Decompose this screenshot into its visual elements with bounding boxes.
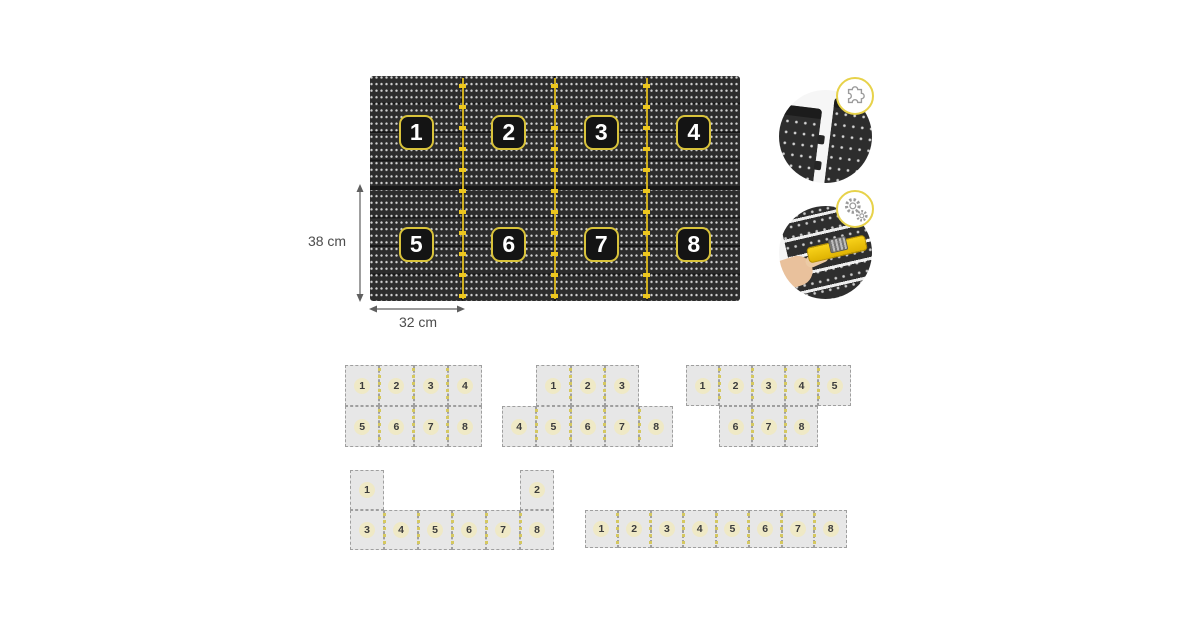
tile-connector-dashes (569, 409, 572, 444)
layout-tile: 8 (785, 406, 818, 447)
layout-tile: 1 (686, 365, 719, 406)
panel-number-badge: 5 (399, 227, 434, 262)
tile-connector-dashes (446, 409, 449, 444)
tile-connector-dashes (718, 368, 721, 403)
tile-number: 2 (626, 521, 642, 537)
layout-tile: 1 (345, 365, 379, 406)
layout-tile: 3 (414, 365, 448, 406)
tile-number: 6 (757, 521, 773, 537)
height-dimension-label: 38 cm (302, 233, 352, 249)
panel-number-badge: 1 (399, 115, 434, 150)
product-diagram-canvas: 12345678 38 cm 32 cm (0, 0, 1200, 630)
layout-tile: 1 (585, 510, 618, 548)
tile-number: 8 (648, 419, 664, 435)
layout-tile: 4 (384, 510, 418, 550)
tile-number: 6 (461, 522, 477, 538)
tile-number: 5 (354, 419, 370, 435)
tile-number: 6 (580, 419, 596, 435)
tile-connector-dashes (412, 368, 415, 403)
layout-tile: 4 (448, 365, 482, 406)
tile-number: 4 (393, 522, 409, 538)
layout-tile: 5 (345, 406, 379, 447)
tile-number: 4 (794, 378, 810, 394)
layout-tile: 3 (752, 365, 785, 406)
gears-icon (842, 196, 869, 223)
panel-connector-strip (643, 78, 650, 299)
layout-tile: 6 (571, 406, 605, 447)
tile-number: 7 (495, 522, 511, 538)
tile-connector-dashes (378, 368, 381, 403)
tile-number: 5 (545, 419, 561, 435)
layout-tile: 3 (350, 510, 384, 550)
tile-number: 8 (794, 419, 810, 435)
tile-number: 7 (761, 419, 777, 435)
layout-tile: 2 (379, 365, 413, 406)
panel-number-badge: 6 (491, 227, 526, 262)
tile-connector-dashes (519, 513, 522, 547)
tile-number: 1 (545, 378, 561, 394)
layout-tile: 2 (520, 470, 554, 510)
layout-tile: 5 (818, 365, 851, 406)
layout-tile: 6 (379, 406, 413, 447)
layout-tile: 7 (782, 510, 815, 548)
tile-number: 3 (659, 521, 675, 537)
layout-tile: 7 (605, 406, 639, 447)
layout-tile: 8 (520, 510, 554, 550)
panel-connector-strip (551, 78, 558, 299)
layout-tile: 7 (752, 406, 785, 447)
connector-tab (817, 135, 825, 145)
layout-tile: 4 (502, 406, 536, 447)
layout-tile: 4 (683, 510, 716, 548)
tile-connector-dashes (383, 513, 386, 547)
tile-connector-dashes (535, 409, 538, 444)
tile-number: 6 (388, 419, 404, 435)
tile-number: 3 (761, 378, 777, 394)
tile-number: 2 (580, 378, 596, 394)
tile-number: 8 (529, 522, 545, 538)
tile-number: 8 (457, 419, 473, 435)
layout-tile: 7 (414, 406, 448, 447)
layout-tile: 5 (418, 510, 452, 550)
tile-connector-dashes (784, 368, 787, 403)
tile-connector-dashes (780, 513, 783, 545)
layout-tile: 5 (536, 406, 570, 447)
tile-connector-dashes (569, 368, 572, 403)
main-pegboard: 12345678 (370, 76, 740, 301)
connector-tab (814, 161, 822, 171)
tile-number: 1 (593, 521, 609, 537)
tile-number: 4 (692, 521, 708, 537)
panel-connector-strip (459, 78, 466, 299)
tile-number: 4 (511, 419, 527, 435)
tile-number: 4 (457, 378, 473, 394)
layout-tile: 6 (452, 510, 486, 550)
layout-tile: 6 (719, 406, 752, 447)
tile-connector-dashes (451, 513, 454, 547)
puzzle-icon (844, 85, 866, 107)
tile-connector-dashes (446, 368, 449, 403)
tile-connector-dashes (747, 513, 750, 545)
tile-number: 1 (359, 482, 375, 498)
tile-number: 1 (695, 378, 711, 394)
layout-tile: 8 (814, 510, 847, 548)
panel-number-badge: 2 (491, 115, 526, 150)
tile-connector-dashes (715, 513, 718, 545)
tile-number: 2 (388, 378, 404, 394)
tile-number: 8 (823, 521, 839, 537)
layout-tile: 1 (536, 365, 570, 406)
tile-number: 5 (427, 522, 443, 538)
tile-number: 5 (724, 521, 740, 537)
tile-connector-dashes (682, 513, 685, 545)
tile-number: 2 (529, 482, 545, 498)
tile-connector-dashes (751, 368, 754, 403)
tile-connector-dashes (417, 513, 420, 547)
tile-number: 6 (728, 419, 744, 435)
layout-tile: 8 (639, 406, 673, 447)
tile-number: 7 (614, 419, 630, 435)
layout-tile: 2 (719, 365, 752, 406)
layout-tile: 7 (486, 510, 520, 550)
tile-number: 3 (359, 522, 375, 538)
tile-number: 2 (728, 378, 744, 394)
layout-tile: 1 (350, 470, 384, 510)
layout-tile: 5 (716, 510, 749, 548)
height-dimension-arrow (352, 184, 368, 302)
puzzle-badge (836, 77, 874, 115)
layout-tile: 2 (571, 365, 605, 406)
tile-connector-dashes (784, 409, 787, 444)
tile-connector-dashes (485, 513, 488, 547)
tile-number: 1 (354, 378, 370, 394)
tile-connector-dashes (378, 409, 381, 444)
panel-number-badge: 3 (584, 115, 619, 150)
metal-clip (828, 236, 849, 254)
layout-tile: 2 (618, 510, 651, 548)
tile-connector-dashes (603, 368, 606, 403)
panel-number-badge: 7 (584, 227, 619, 262)
tile-connector-dashes (603, 409, 606, 444)
tile-connector-dashes (412, 409, 415, 444)
tile-number: 3 (614, 378, 630, 394)
tile-connector-dashes (813, 513, 816, 545)
tile-number: 7 (423, 419, 439, 435)
layout-tile: 6 (749, 510, 782, 548)
tile-number: 5 (827, 378, 843, 394)
tile-connector-dashes (616, 513, 619, 545)
layout-tile: 3 (651, 510, 684, 548)
pegboard-piece-left (779, 104, 822, 183)
gears-badge (836, 190, 874, 228)
panel-number-badge: 4 (676, 115, 711, 150)
layout-tile: 8 (448, 406, 482, 447)
layout-tile: 4 (785, 365, 818, 406)
tile-connector-dashes (649, 513, 652, 545)
panel-number-badge: 8 (676, 227, 711, 262)
tile-connector-dashes (638, 409, 641, 444)
tile-number: 7 (790, 521, 806, 537)
tile-connector-dashes (817, 368, 820, 403)
layout-tile: 3 (605, 365, 639, 406)
tile-connector-dashes (751, 409, 754, 444)
tile-number: 3 (423, 378, 439, 394)
width-dimension-label: 32 cm (383, 314, 453, 330)
